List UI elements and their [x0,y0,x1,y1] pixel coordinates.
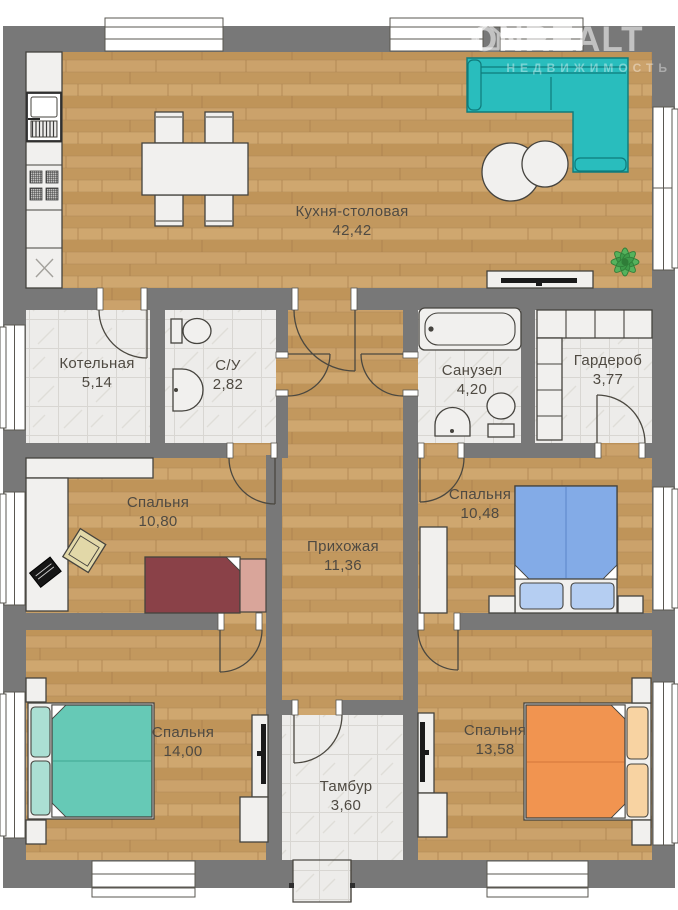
closet [26,458,153,478]
nightstand [26,820,46,844]
double-bed-teal [28,703,154,819]
pillow [627,764,648,817]
pillow [31,707,50,757]
nightstand [618,596,643,613]
floor-plan: Кухня-столовая42,42 Котельная5,14 С/У2,8… [0,0,678,910]
vestibule-floor [282,715,403,860]
tv [420,722,425,782]
blanket [240,559,266,612]
single-bed [145,557,266,613]
boiler-room-floor [26,310,150,443]
plant [611,248,639,276]
nightstand [632,820,651,845]
nightstand [26,678,46,702]
entry-door-threshold [289,860,355,902]
nightstand [489,596,515,613]
pillow [627,707,648,759]
tv [501,278,577,283]
nightstand [632,678,651,703]
desk [26,478,68,611]
cabinet [418,793,447,837]
bathtub [419,308,521,350]
living-tv-stand [487,271,593,288]
pillow [31,761,50,815]
dining-table [142,143,248,195]
bathroom-toilet [487,393,515,419]
floor-plan-svg [0,0,678,910]
cabinet [240,797,268,842]
tv-stand [252,715,268,797]
kitchen-sink [27,93,61,141]
kitchen-counter [26,52,62,288]
tv [261,724,266,784]
pillow [520,583,563,609]
double-bed-orange [524,703,651,820]
double-bed-blue [515,486,617,613]
toilet-tank [171,319,182,343]
coffee-table [522,141,568,187]
closet [420,527,447,613]
toilet [183,319,211,344]
pillow [571,583,614,609]
tv-stand [418,713,434,793]
